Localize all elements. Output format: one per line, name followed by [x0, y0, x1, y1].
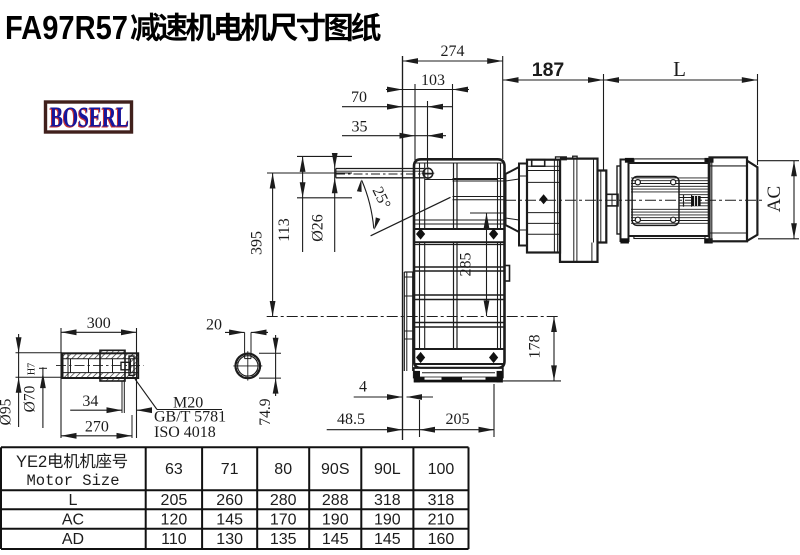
svg-text:190: 190	[322, 512, 349, 529]
svg-text:70: 70	[351, 89, 367, 106]
svg-text:274: 274	[441, 43, 465, 60]
svg-text:34: 34	[82, 393, 98, 410]
svg-text:AC: AC	[62, 512, 84, 529]
svg-text:Ø95: Ø95	[0, 398, 15, 425]
svg-text:113: 113	[276, 218, 293, 241]
svg-text:90S: 90S	[321, 461, 349, 478]
svg-text:178: 178	[527, 335, 544, 359]
svg-text:100: 100	[428, 461, 455, 478]
svg-text:Motor Size: Motor Size	[26, 472, 119, 490]
svg-text:AD: AD	[62, 531, 84, 548]
svg-text:110: 110	[161, 531, 187, 548]
svg-text:71: 71	[221, 461, 239, 478]
svg-text:210: 210	[428, 512, 455, 529]
svg-text:285: 285	[458, 253, 475, 277]
svg-text:90L: 90L	[374, 461, 401, 478]
svg-text:YE2: YE2	[16, 453, 47, 471]
svg-text:318: 318	[428, 492, 455, 509]
svg-text:260: 260	[216, 492, 243, 509]
svg-text:AC: AC	[764, 186, 785, 212]
svg-text:318: 318	[374, 492, 401, 509]
svg-text:300: 300	[87, 315, 111, 332]
svg-text:35: 35	[352, 119, 368, 136]
svg-text:170: 170	[270, 512, 297, 529]
svg-text:145: 145	[216, 512, 243, 529]
svg-text:145: 145	[374, 531, 401, 548]
svg-text:FA97R57: FA97R57	[5, 9, 128, 46]
svg-text:160: 160	[428, 531, 455, 548]
svg-text:20: 20	[206, 317, 222, 334]
svg-text:103: 103	[421, 72, 445, 89]
svg-text:145: 145	[322, 531, 349, 548]
svg-text:ISO 4018: ISO 4018	[154, 424, 216, 441]
svg-text:L: L	[673, 57, 686, 81]
svg-text:80: 80	[274, 461, 292, 478]
svg-text:288: 288	[322, 492, 349, 509]
svg-text:135: 135	[270, 531, 297, 548]
svg-text:63: 63	[165, 461, 183, 478]
svg-text:Ø26: Ø26	[310, 214, 327, 242]
svg-text:205: 205	[161, 492, 188, 509]
svg-text:280: 280	[270, 492, 297, 509]
svg-text:130: 130	[216, 531, 243, 548]
svg-text:270: 270	[85, 419, 109, 436]
svg-text:Ø70: Ø70	[22, 385, 39, 412]
svg-text:187: 187	[532, 59, 565, 81]
svg-text:395: 395	[249, 231, 266, 255]
svg-text:GB/T 5781: GB/T 5781	[154, 409, 226, 426]
svg-text:4: 4	[359, 379, 367, 396]
svg-text:120: 120	[161, 512, 188, 529]
svg-text:L: L	[69, 492, 78, 509]
svg-text:205: 205	[446, 411, 470, 428]
svg-text:190: 190	[374, 512, 401, 529]
svg-text:48.5: 48.5	[337, 411, 365, 428]
svg-text:74.9: 74.9	[257, 398, 274, 425]
svg-text:BOSERL: BOSERL	[50, 103, 129, 134]
svg-text:H7: H7	[27, 363, 38, 375]
